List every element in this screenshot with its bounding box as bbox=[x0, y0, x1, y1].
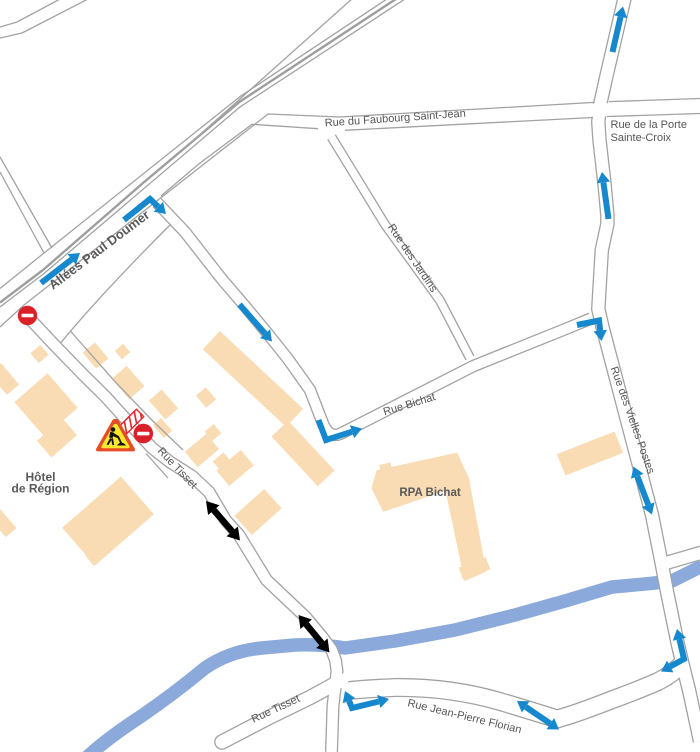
svg-text:RPA Bichat: RPA Bichat bbox=[399, 487, 461, 499]
svg-text:Rue de la Porte: Rue de la Porte bbox=[611, 119, 687, 131]
svg-text:Sainte-Croix: Sainte-Croix bbox=[611, 132, 672, 144]
svg-text:de Région: de Région bbox=[11, 482, 69, 496]
